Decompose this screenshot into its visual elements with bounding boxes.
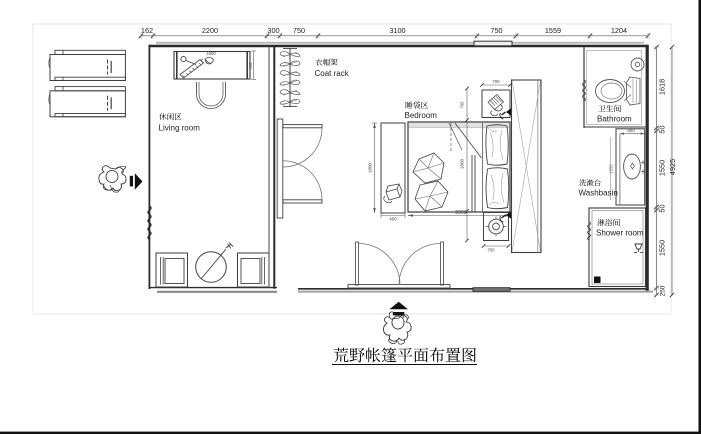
svg-text:700: 700 (493, 79, 501, 84)
svg-text:Washbasin: Washbasin (579, 189, 618, 198)
svg-text:2000: 2000 (455, 210, 467, 216)
svg-text:1550: 1550 (658, 160, 667, 176)
svg-text:4925: 4925 (668, 159, 677, 175)
svg-text:Bedroom: Bedroom (405, 111, 438, 120)
svg-text:2200: 2200 (202, 26, 218, 35)
svg-text:Shower room: Shower room (596, 229, 644, 238)
svg-text:1550: 1550 (658, 240, 667, 256)
svg-text:1800: 1800 (368, 162, 373, 173)
svg-text:750: 750 (490, 26, 502, 35)
svg-text:1204: 1204 (611, 26, 627, 35)
svg-text:1800: 1800 (460, 158, 465, 169)
svg-text:1559: 1559 (545, 26, 561, 35)
svg-text:50: 50 (658, 125, 667, 133)
svg-text:Living room: Living room (159, 124, 201, 133)
svg-text:Coat rack: Coat rack (315, 69, 350, 78)
svg-text:1500: 1500 (206, 51, 216, 56)
svg-text:700: 700 (488, 247, 496, 252)
svg-text:Bathroom: Bathroom (597, 115, 632, 124)
svg-text:600: 600 (248, 62, 253, 70)
svg-text:700: 700 (460, 101, 465, 109)
svg-text:450: 450 (389, 217, 397, 222)
svg-text:162: 162 (141, 26, 153, 35)
svg-text:750: 750 (293, 26, 305, 35)
svg-text:3100: 3100 (389, 26, 405, 35)
svg-text:1550: 1550 (609, 164, 614, 174)
svg-text:300: 300 (267, 26, 279, 35)
svg-text:250: 250 (660, 285, 667, 296)
svg-text:1618: 1618 (658, 79, 667, 95)
svg-text:50: 50 (658, 204, 667, 212)
